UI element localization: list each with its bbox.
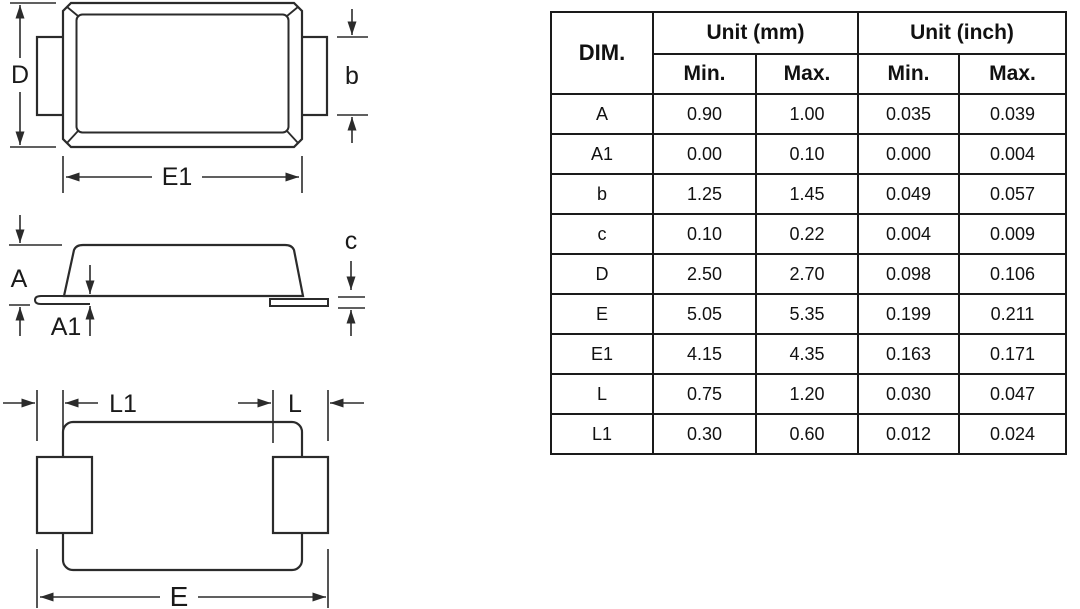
inch-min-cell: 0.004 [858,214,959,254]
mm-max-cell: 5.35 [756,294,858,334]
header-cell-mm-max: Max. [756,54,858,94]
table-row: b 1.25 1.45 0.049 0.057 [551,174,1066,214]
side-view-body [64,245,303,296]
table-row: A1 0.00 0.10 0.000 0.004 [551,134,1066,174]
inch-max-cell: 0.057 [959,174,1066,214]
table-row: E1 4.15 4.35 0.163 0.171 [551,334,1066,374]
extension-line [37,390,63,443]
dimension-c: c [338,227,365,336]
mm-min-cell: 2.50 [653,254,756,294]
dim-cell: A [551,94,653,134]
dim-label-c: c [345,227,358,255]
mm-min-cell: 0.90 [653,94,756,134]
inch-min-cell: 0.163 [858,334,959,374]
dim-cell: c [551,214,653,254]
mm-min-cell: 0.00 [653,134,756,174]
mm-max-cell: 0.60 [756,414,858,454]
mm-min-cell: 0.75 [653,374,756,414]
bottom-view-left-pad [37,457,92,533]
extension-line [338,297,365,308]
mm-max-cell: 1.20 [756,374,858,414]
mm-max-cell: 1.45 [756,174,858,214]
inch-min-cell: 0.000 [858,134,959,174]
dim-label-E1: E1 [162,163,193,191]
mm-max-cell: 2.70 [756,254,858,294]
dim-label-D: D [11,61,29,89]
table-row: c 0.10 0.22 0.004 0.009 [551,214,1066,254]
mm-max-cell: 4.35 [756,334,858,374]
inch-min-cell: 0.199 [858,294,959,334]
bottom-view-right-pad [273,457,328,533]
table-row: L1 0.30 0.60 0.012 0.024 [551,414,1066,454]
table-row: D 2.50 2.70 0.098 0.106 [551,254,1066,294]
table-row: L 0.75 1.20 0.030 0.047 [551,374,1066,414]
dim-cell: E1 [551,334,653,374]
mm-min-cell: 0.10 [653,214,756,254]
datasheet-package-outline-page: D b E1 A [0,0,1080,609]
inch-max-cell: 0.171 [959,334,1066,374]
inch-min-cell: 0.049 [858,174,959,214]
side-view: A A1 c [9,215,365,341]
header-cell-inch-max: Max. [959,54,1066,94]
dim-cell: L1 [551,414,653,454]
top-view-left-lead [37,37,64,115]
inch-max-cell: 0.039 [959,94,1066,134]
side-view-right-lead [270,299,328,306]
mm-min-cell: 1.25 [653,174,756,214]
inch-min-cell: 0.035 [858,94,959,134]
mm-max-cell: 0.10 [756,134,858,174]
inch-max-cell: 0.009 [959,214,1066,254]
header-cell-mm-min: Min. [653,54,756,94]
dim-cell: L [551,374,653,414]
mm-min-cell: 0.30 [653,414,756,454]
dimension-b: b [337,9,368,143]
dim-label-A: A [11,265,28,293]
bottom-view-body [63,422,302,570]
inch-min-cell: 0.030 [858,374,959,414]
header-cell-dim: DIM. [551,12,653,94]
dim-label-b: b [345,62,359,90]
inch-min-cell: 0.012 [858,414,959,454]
top-view-right-lead [301,37,327,115]
bottom-view: L1 L E [3,390,364,609]
header-cell-unit-mm: Unit (mm) [653,12,858,54]
dim-label-A1: A1 [51,313,82,341]
inch-max-cell: 0.004 [959,134,1066,174]
dim-label-L: L [288,390,302,418]
header-cell-unit-inch: Unit (inch) [858,12,1066,54]
inch-min-cell: 0.098 [858,254,959,294]
table-row: E 5.05 5.35 0.199 0.211 [551,294,1066,334]
inch-max-cell: 0.106 [959,254,1066,294]
mm-max-cell: 0.22 [756,214,858,254]
inch-max-cell: 0.211 [959,294,1066,334]
mm-min-cell: 5.05 [653,294,756,334]
dim-label-L1: L1 [109,390,137,418]
top-view: D b E1 [10,3,368,193]
dimensions-table: DIM. Unit (mm) Unit (inch) Min. Max. Min… [550,11,1067,455]
dim-cell: E [551,294,653,334]
package-body-outline [63,3,302,147]
dim-cell: A1 [551,134,653,174]
mm-max-cell: 1.00 [756,94,858,134]
inch-max-cell: 0.047 [959,374,1066,414]
dim-cell: D [551,254,653,294]
side-view-left-lead [35,296,90,304]
package-outline-drawing: D b E1 A [0,0,540,609]
table-header-row-units: DIM. Unit (mm) Unit (inch) [551,12,1066,54]
table-row: A 0.90 1.00 0.035 0.039 [551,94,1066,134]
dim-cell: b [551,174,653,214]
dimension-E1: E1 [63,156,302,193]
header-cell-inch-min: Min. [858,54,959,94]
mm-min-cell: 4.15 [653,334,756,374]
dim-label-E: E [170,581,189,609]
inch-max-cell: 0.024 [959,414,1066,454]
